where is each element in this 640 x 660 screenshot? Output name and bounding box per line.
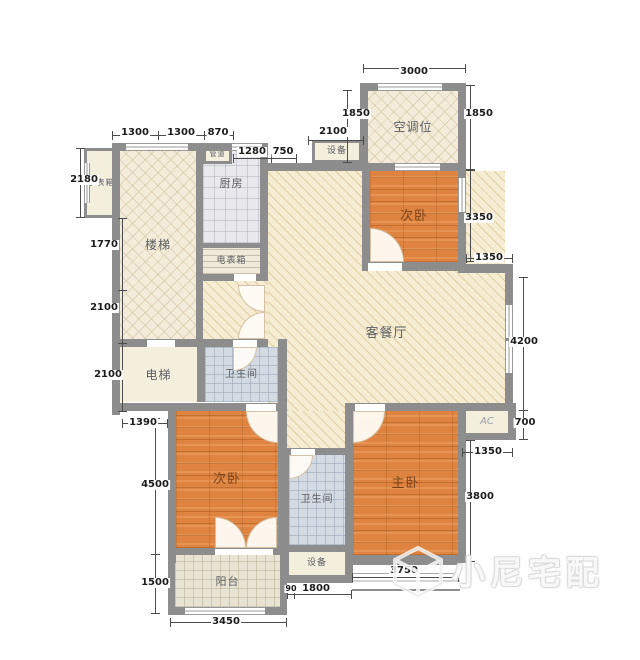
wall-segment: [360, 83, 368, 171]
door-opening: [355, 404, 385, 411]
dimension-line: [512, 448, 513, 457]
dimension-label: 1300: [166, 128, 196, 138]
dimension-label: 1350: [474, 253, 504, 263]
dimension-line: [519, 439, 528, 440]
dimension-line: [462, 448, 463, 457]
ac-bay: 空调位: [368, 91, 458, 163]
wall-segment: [345, 555, 466, 563]
dimension-line: [343, 90, 352, 91]
dimension-line: [204, 131, 205, 140]
wall-segment: [203, 243, 260, 248]
door-opening: [215, 549, 273, 555]
dimension-line: [118, 343, 127, 344]
dimension-label: 4500: [140, 480, 170, 490]
dimension-line: [466, 254, 467, 263]
electric-meter-box-label: 电表箱: [216, 257, 246, 266]
dimension-label: 3350: [464, 213, 494, 223]
dimension-label: 1350: [473, 447, 503, 457]
equipment-north: 设备: [312, 140, 362, 163]
dimension-label: 1800: [301, 584, 331, 594]
door-opening: [234, 274, 256, 281]
balcony: 阳台: [175, 555, 280, 607]
dimension-label: 1390: [128, 418, 158, 428]
elevator: 电梯: [120, 347, 197, 402]
dimension-line: [466, 440, 475, 441]
bedroom-2-south-label: 次卧: [213, 473, 241, 486]
dimension-label: 90: [284, 585, 297, 593]
dimension-line: [308, 140, 364, 141]
dimension-line: [466, 561, 475, 562]
equipment-south: 设备: [289, 552, 345, 575]
wall-segment: [362, 163, 370, 271]
dimension-line: [523, 277, 524, 440]
bathroom-1-label: 卫生间: [225, 370, 258, 380]
wall-segment: [196, 151, 203, 347]
electric-meter-box: 电表箱: [203, 248, 260, 274]
elevator-label: 电梯: [145, 369, 171, 381]
wall-segment: [278, 339, 287, 411]
dimension-line: [112, 131, 113, 140]
dimension-line: [233, 131, 234, 140]
dimension-line: [308, 136, 309, 145]
dimension-label: 870: [207, 128, 230, 138]
dimension-line: [363, 64, 364, 73]
dimension-line: [76, 148, 85, 149]
dimension-label: 750: [272, 147, 295, 157]
stairs: 楼梯: [120, 151, 196, 339]
dimension-line: [118, 218, 127, 219]
dimension-line: [167, 419, 168, 428]
dimension-label: 3800: [465, 492, 495, 502]
dimension-label: 1280: [237, 147, 267, 157]
window: [378, 83, 442, 91]
dimension-line: [286, 618, 287, 627]
window: [395, 163, 440, 171]
ac-unit-label: AC: [480, 417, 494, 427]
floor-plan: 客餐厅楼梯空调位次卧次卧主卧厨房电表箱电梯卫生间卫生间阳台设备设备管道水表箱AC…: [0, 0, 640, 660]
dimension-label: 1850: [341, 109, 371, 119]
window: [126, 143, 188, 151]
balcony-label: 阳台: [216, 576, 240, 587]
door-opening: [368, 263, 402, 271]
dimension-line: [466, 85, 475, 86]
dimension-label: 3450: [211, 617, 241, 627]
dimension-line: [343, 162, 352, 163]
dimension-line: [233, 158, 297, 159]
dimension-line: [151, 613, 160, 614]
equipment-north-label: 设备: [327, 147, 347, 156]
dimension-label: 2100: [318, 127, 348, 137]
dimension-label: 700: [514, 418, 537, 428]
window: [505, 305, 513, 338]
ac-unit: AC: [466, 411, 508, 433]
dimension-line: [76, 217, 85, 218]
stairs-label: 楼梯: [145, 239, 171, 251]
dimension-line: [118, 290, 127, 291]
dimension-line: [512, 254, 513, 263]
door-opening: [246, 404, 276, 411]
dimension-line: [352, 577, 459, 578]
dimension-line: [363, 136, 364, 145]
dimension-label: 1500: [140, 578, 170, 588]
dimension-line: [296, 154, 297, 163]
bathroom-2-label: 卫生间: [301, 495, 334, 505]
dimension-line: [122, 419, 123, 428]
ac-bay-label: 空调位: [393, 121, 432, 133]
dimension-label: 3750: [389, 566, 419, 576]
dimension-line: [470, 85, 471, 170]
wall-segment: [281, 545, 353, 552]
dimension-line: [151, 554, 160, 555]
pipe-duct-label: 管道: [210, 151, 226, 158]
dimension-line: [287, 594, 352, 595]
dimension-line: [519, 277, 528, 278]
dimension-line: [170, 618, 171, 627]
dimension-label: 2180: [69, 175, 99, 185]
wall-segment: [458, 264, 513, 273]
wall-segment: [281, 575, 353, 583]
kitchen-label: 厨房: [220, 178, 244, 189]
window: [458, 178, 466, 212]
dimension-line: [465, 64, 466, 73]
dimension-line: [466, 170, 475, 171]
dimension-line: [158, 131, 159, 140]
kitchen: 厨房: [203, 151, 260, 243]
dimension-line: [118, 411, 127, 412]
dimension-line: [519, 410, 528, 411]
living-dining-room-label: 客餐厅: [365, 327, 407, 340]
master-bedroom-label: 主卧: [391, 477, 419, 490]
wall-segment: [458, 83, 466, 171]
door-opening: [147, 340, 175, 347]
dimension-label: 2100: [93, 370, 123, 380]
door-opening: [233, 340, 257, 347]
dimension-label: 1770: [89, 240, 119, 250]
dimension-label: 4200: [509, 337, 539, 347]
dimension-line: [458, 573, 459, 582]
dimension-line: [351, 590, 352, 599]
dimension-line: [122, 218, 123, 412]
dimension-label: 1850: [464, 109, 494, 119]
dimension-label: 1300: [120, 128, 150, 138]
window: [185, 607, 265, 615]
dimension-label: 2100: [89, 303, 119, 313]
equipment-south-label: 设备: [307, 559, 327, 568]
bedroom-2-north-label: 次卧: [400, 210, 428, 223]
dimension-line: [233, 154, 234, 163]
dimension-line: [352, 573, 353, 582]
dimension-label: 3000: [399, 67, 429, 77]
wall-segment: [197, 347, 205, 402]
